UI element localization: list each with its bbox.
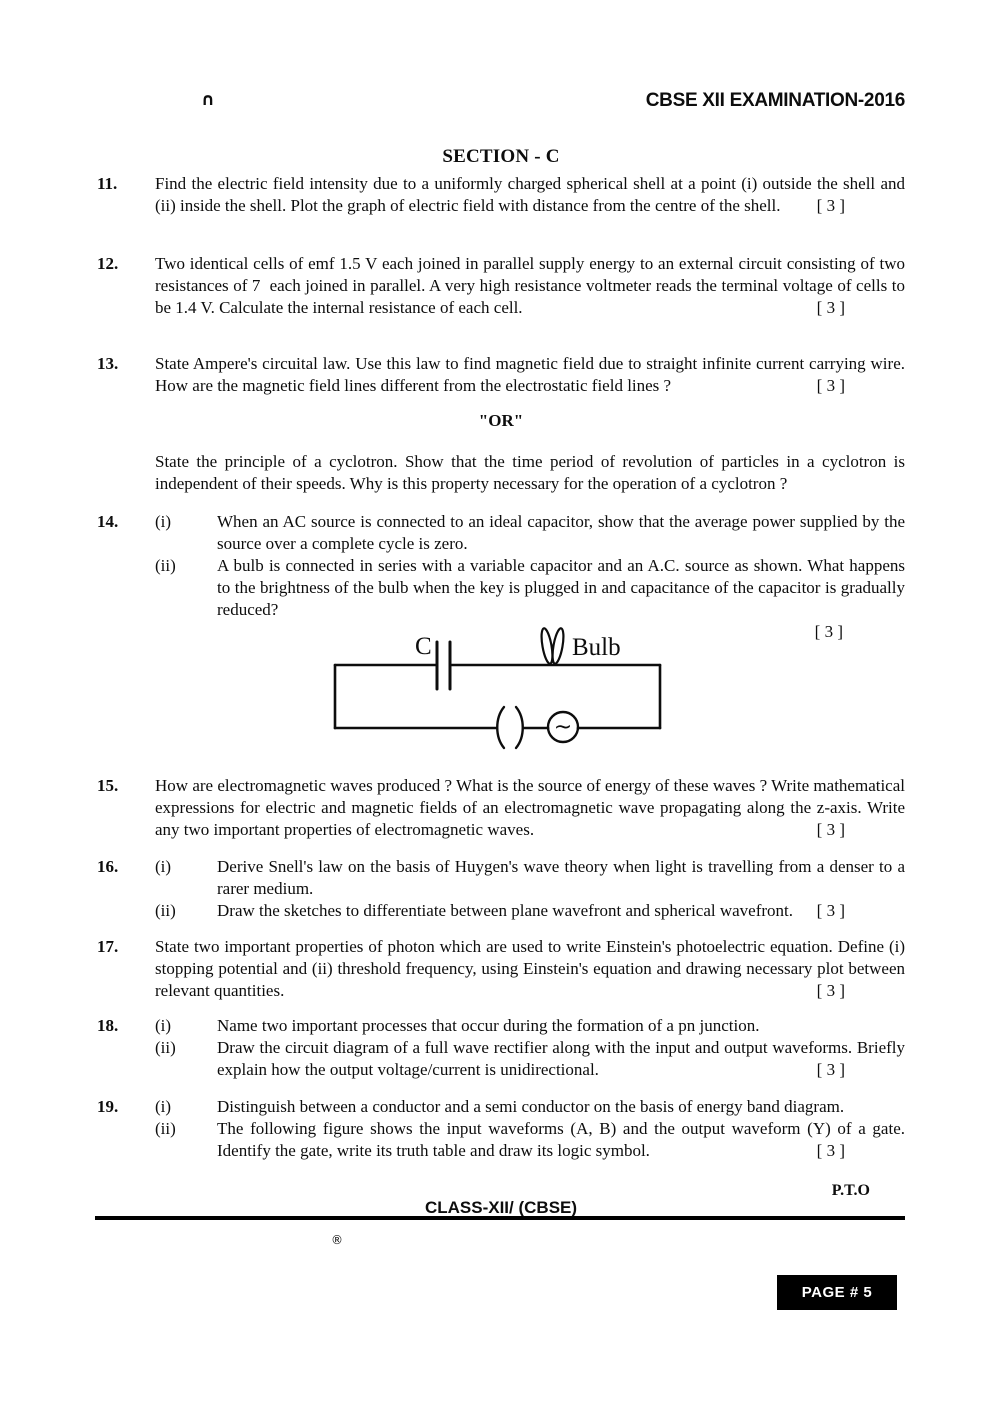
question-text: State Ampere's circuital law. Use this l… (155, 353, 905, 397)
or-separator: "OR" (97, 410, 905, 432)
question-part-i: (i) Name two important processes that oc… (155, 1015, 905, 1037)
bulb-icon (539, 627, 565, 664)
capacitor-label: C (415, 633, 432, 660)
or-alternative-question: State the principle of a cyclotron. Show… (155, 451, 905, 495)
question-number: 12. (97, 253, 155, 319)
question-number: 19. (97, 1096, 155, 1162)
question-part-i: (i) When an AC source is connected to an… (155, 511, 905, 555)
question-19: 19. (i) Distinguish between a conductor … (97, 1096, 905, 1162)
part-text: The following figure shows the input wav… (217, 1118, 905, 1162)
question-number: 14. (97, 511, 155, 643)
marks-badge: [ 3 ] (817, 195, 845, 217)
question-part-ii: (ii) A bulb is connected in series with … (155, 555, 905, 621)
question-part-ii: (ii) Draw the sketches to differentiate … (155, 900, 905, 922)
question-16: 16. (i) Derive Snell's law on the basis … (97, 856, 905, 922)
part-text-body: Draw the circuit diagram of a full wave … (217, 1038, 905, 1079)
question-15: 15. How are electromagnetic waves produc… (97, 775, 905, 841)
part-text: Draw the circuit diagram of a full wave … (217, 1037, 905, 1081)
marks-badge: [ 3 ] (817, 1140, 845, 1162)
question-text-body: Two identical cells of emf 1.5 V each jo… (155, 254, 905, 317)
question-number: 11. (97, 173, 155, 217)
section-title: SECTION - C (97, 146, 905, 168)
part-label: (i) (155, 856, 217, 900)
question-number: 15. (97, 775, 155, 841)
exam-paper-page: ∩ CBSE XII EXAMINATION-2016 SECTION - C … (0, 0, 992, 1402)
part-label: (ii) (155, 1118, 217, 1162)
question-13: 13. State Ampere's circuital law. Use th… (97, 353, 905, 397)
page-number-badge: PAGE # 5 (777, 1275, 897, 1310)
registered-trademark-icon: ® (331, 1229, 343, 1251)
part-label: (ii) (155, 555, 217, 621)
marks-badge: [ 3 ] (817, 375, 845, 397)
key-icon (497, 707, 523, 748)
question-number: 16. (97, 856, 155, 922)
question-18: 18. (i) Name two important processes tha… (97, 1015, 905, 1081)
capacitor-icon (437, 642, 450, 689)
question-number: 18. (97, 1015, 155, 1081)
question-number: 13. (97, 353, 155, 397)
part-text-body: Draw the sketches to differentiate betwe… (217, 901, 793, 920)
question-text: Two identical cells of emf 1.5 V each jo… (155, 253, 905, 319)
part-text: When an AC source is connected to an ide… (217, 511, 905, 555)
circuit-diagram-figure: C Bulb ~ (320, 616, 720, 761)
question-number: 17. (97, 936, 155, 1002)
marks-badge: [ 3 ] (817, 1059, 845, 1081)
part-label: (ii) (155, 900, 217, 922)
ac-tilde-symbol: ~ (554, 715, 572, 740)
question-text: Find the electric field intensity due to… (155, 173, 905, 217)
question-text-body: How are electromagnetic waves produced ?… (155, 776, 905, 839)
bulb-label: Bulb (572, 634, 621, 661)
question-11: 11. Find the electric field intensity du… (97, 173, 905, 217)
question-text-body: State two important properties of photon… (155, 937, 905, 1000)
marks-badge: [ 3 ] (817, 819, 845, 841)
question-part-i: (i) Distinguish between a conductor and … (155, 1096, 905, 1118)
part-label: (i) (155, 1096, 217, 1118)
part-text: Draw the sketches to differentiate betwe… (217, 900, 905, 922)
marks-badge: [ 3 ] (817, 900, 845, 922)
question-part-i: (i) Derive Snell's law on the basis of H… (155, 856, 905, 900)
part-label: (i) (155, 1015, 217, 1037)
part-label: (ii) (155, 1037, 217, 1081)
marks-badge: [ 3 ] (817, 297, 845, 319)
part-text: Name two important processes that occur … (217, 1015, 905, 1037)
part-text: Distinguish between a conductor and a se… (217, 1096, 905, 1118)
part-text: Derive Snell's law on the basis of Huyge… (217, 856, 905, 900)
exam-header-title: CBSE XII EXAMINATION-2016 (97, 90, 905, 112)
part-text-body: The following figure shows the input wav… (217, 1119, 905, 1160)
question-17: 17. State two important properties of ph… (97, 936, 905, 1002)
question-12: 12. Two identical cells of emf 1.5 V eac… (97, 253, 905, 319)
question-text: State two important properties of photon… (155, 936, 905, 1002)
part-text: A bulb is connected in series with a var… (217, 555, 905, 621)
question-text-body: State Ampere's circuital law. Use this l… (155, 354, 905, 395)
footer-rule (95, 1216, 905, 1220)
question-text: How are electromagnetic waves produced ?… (155, 775, 905, 841)
question-part-ii: (ii) The following figure shows the inpu… (155, 1118, 905, 1162)
part-label: (i) (155, 511, 217, 555)
question-part-ii: (ii) Draw the circuit diagram of a full … (155, 1037, 905, 1081)
marks-badge: [ 3 ] (817, 980, 845, 1002)
circuit-diagram-svg: C Bulb ~ (320, 616, 720, 761)
question-text-body: Find the electric field intensity due to… (155, 174, 905, 215)
